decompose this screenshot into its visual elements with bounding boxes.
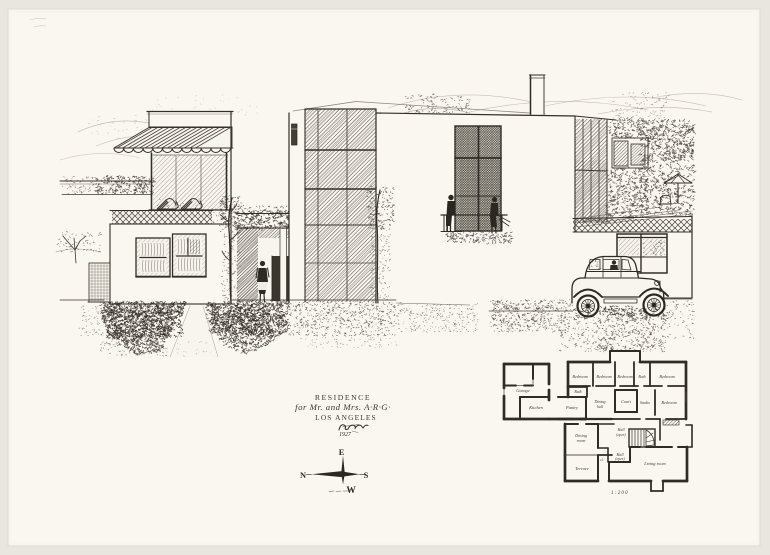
svg-text:Garage: Garage <box>516 388 529 393</box>
svg-text:Bath: Bath <box>574 390 581 394</box>
svg-text:Living room: Living room <box>643 461 665 466</box>
svg-text:Kitchen: Kitchen <box>528 405 543 410</box>
svg-text:1927: 1927 <box>339 432 352 438</box>
svg-text:room: room <box>577 438 586 443</box>
svg-text:Bedroom: Bedroom <box>661 400 676 405</box>
svg-text:Hall: Hall <box>616 427 625 432</box>
svg-text:cl.: cl. <box>600 458 604 462</box>
svg-text:S: S <box>364 471 369 480</box>
svg-text:Bedroom: Bedroom <box>596 374 611 379</box>
svg-text:Pantry: Pantry <box>565 405 578 410</box>
svg-text:1:200: 1:200 <box>611 491 629 496</box>
svg-text:Bedroom: Bedroom <box>617 374 632 379</box>
svg-text:for Mr. and Mrs. A·R·G·: for Mr. and Mrs. A·R·G· <box>295 402 391 412</box>
svg-text:RESIDENCE: RESIDENCE <box>315 393 371 402</box>
svg-text:(open): (open) <box>615 457 625 461</box>
svg-text:LOS ANGELES: LOS ANGELES <box>315 413 377 422</box>
svg-text:Bedroom: Bedroom <box>659 374 674 379</box>
svg-text:Bath: Bath <box>638 375 645 379</box>
svg-text:Court: Court <box>621 399 632 404</box>
svg-text:E: E <box>339 448 345 457</box>
svg-text:hall: hall <box>597 404 604 409</box>
svg-text:Bedroom: Bedroom <box>572 374 587 379</box>
svg-text:(open): (open) <box>616 433 626 437</box>
svg-text:N: N <box>300 471 306 480</box>
svg-text:Terrace: Terrace <box>575 466 589 471</box>
svg-text:Studio: Studio <box>640 400 650 405</box>
